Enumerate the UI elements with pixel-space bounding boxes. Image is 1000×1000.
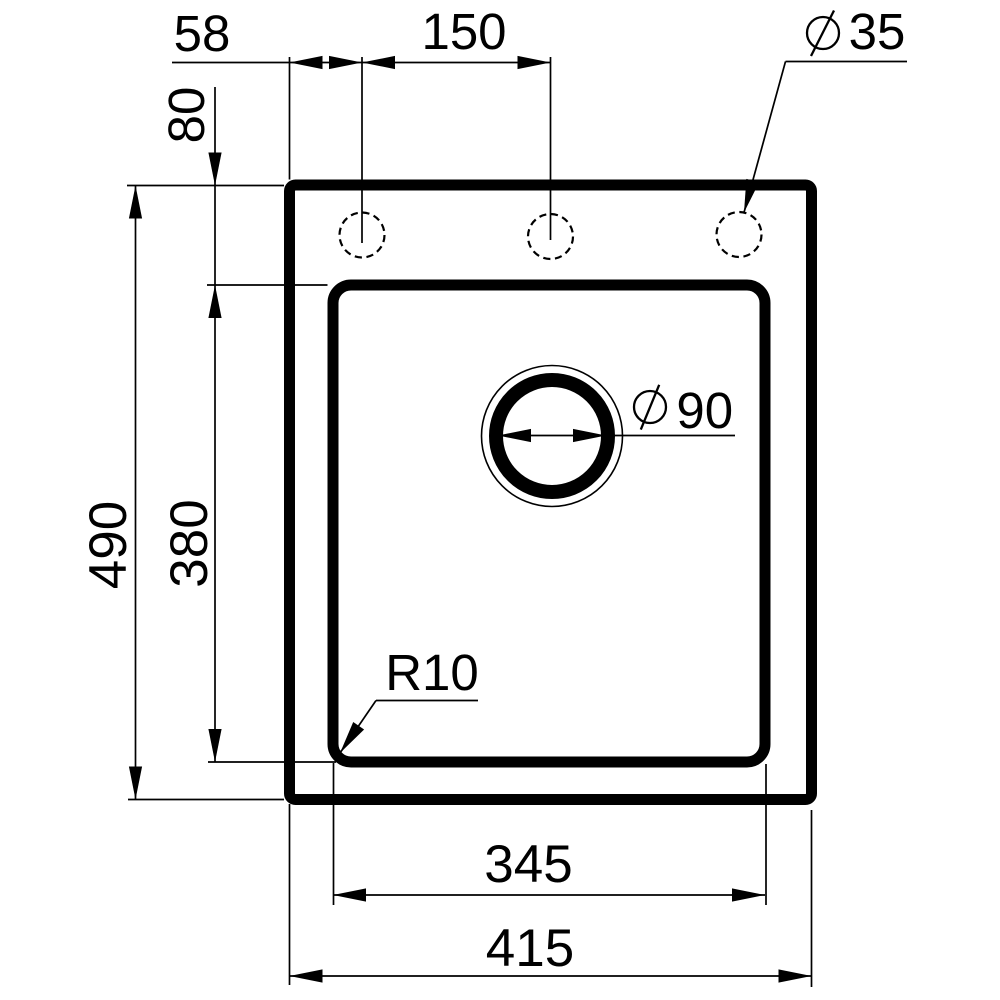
svg-text:80: 80 <box>158 87 215 144</box>
svg-text:90: 90 <box>676 382 733 439</box>
svg-text:490: 490 <box>79 501 138 589</box>
svg-text:R10: R10 <box>385 644 479 701</box>
svg-text:415: 415 <box>486 919 574 978</box>
svg-text:150: 150 <box>421 3 506 60</box>
svg-text:380: 380 <box>160 499 219 587</box>
svg-text:345: 345 <box>484 835 572 894</box>
svg-text:35: 35 <box>849 3 906 60</box>
svg-text:58: 58 <box>174 5 231 62</box>
